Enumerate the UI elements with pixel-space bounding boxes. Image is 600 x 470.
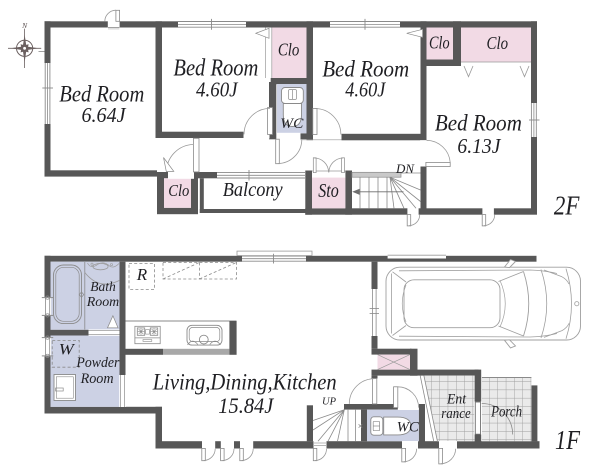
- svg-text:4.60J: 4.60J: [196, 78, 239, 102]
- svg-text:6.13J: 6.13J: [457, 134, 501, 158]
- svg-text:Living,Dining,Kitchen: Living,Dining,Kitchen: [152, 370, 337, 396]
- svg-text:W: W: [59, 342, 76, 359]
- svg-text:Clo: Clo: [168, 181, 189, 200]
- svg-text:N: N: [21, 21, 28, 30]
- svg-text:R: R: [136, 265, 148, 284]
- svg-text:4.60J: 4.60J: [345, 77, 386, 101]
- svg-text:2F: 2F: [554, 191, 580, 221]
- svg-text:Room: Room: [80, 371, 114, 387]
- svg-text:15.84J: 15.84J: [218, 393, 274, 418]
- svg-text:Sto: Sto: [318, 181, 339, 202]
- svg-text:UP: UP: [322, 396, 336, 408]
- svg-text:Clo: Clo: [487, 33, 509, 53]
- svg-text:Clo: Clo: [429, 33, 450, 53]
- svg-text:1F: 1F: [555, 425, 580, 455]
- svg-text:Ent: Ent: [446, 391, 467, 407]
- svg-text:rance: rance: [441, 406, 471, 422]
- svg-text:Room: Room: [86, 294, 120, 309]
- svg-text:WC: WC: [280, 116, 304, 132]
- svg-text:Clo: Clo: [278, 40, 300, 60]
- svg-text:Porch: Porch: [490, 404, 522, 421]
- svg-text:Balcony: Balcony: [223, 180, 283, 201]
- svg-text:DN: DN: [395, 162, 415, 176]
- svg-text:6.64J: 6.64J: [82, 103, 127, 127]
- svg-text:Bed Room: Bed Room: [435, 110, 522, 136]
- svg-text:WC: WC: [397, 420, 420, 436]
- svg-text:Powder: Powder: [75, 355, 119, 371]
- svg-text:Bath: Bath: [90, 279, 116, 294]
